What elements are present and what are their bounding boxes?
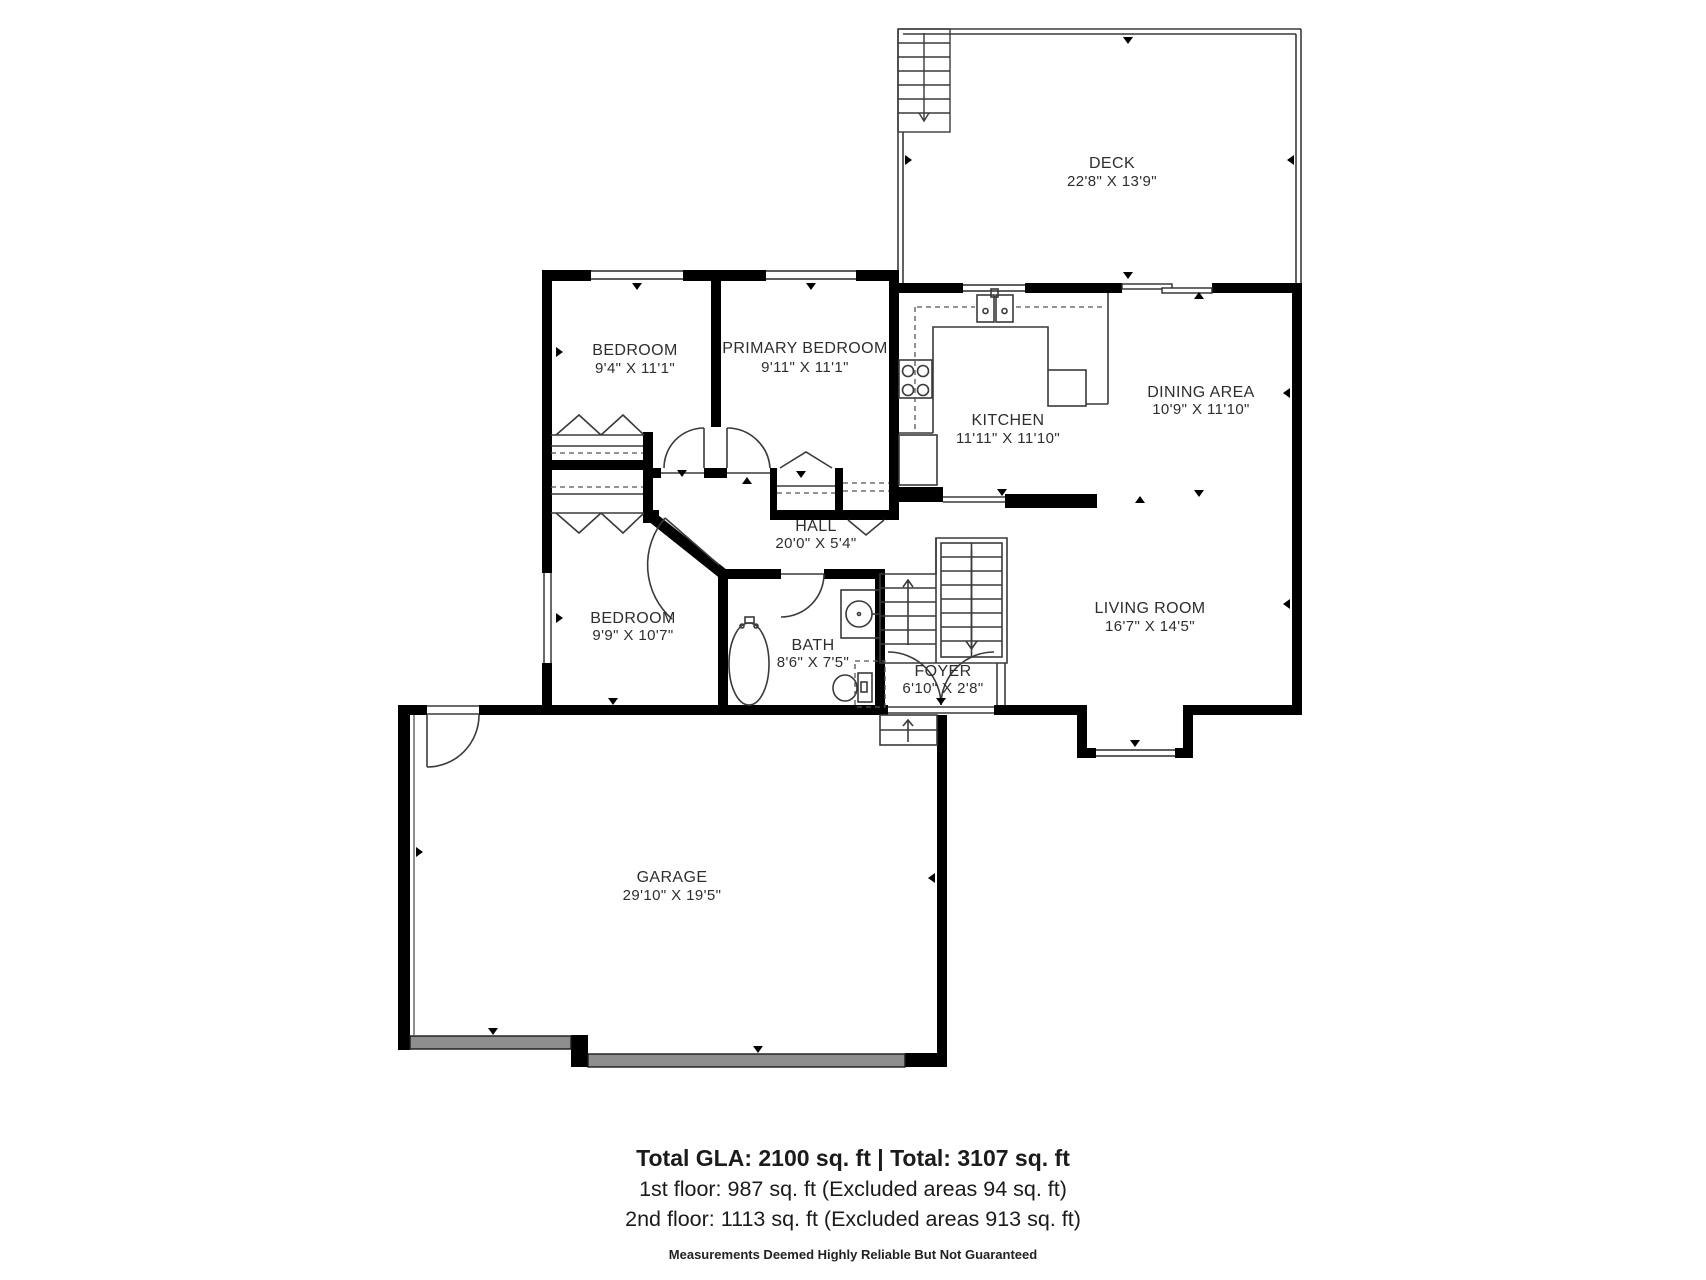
garage-dims: 29'10" X 19'5"	[623, 887, 722, 904]
bath-sink	[841, 590, 880, 638]
second-floor-line: 2nd floor: 1113 sq. ft (Excluded areas 9…	[0, 1204, 1706, 1234]
bedroom1-window	[591, 269, 683, 282]
dining-area-label: DINING AREA	[1147, 384, 1255, 401]
foyer-dims: 6'10" X 2'8"	[902, 680, 983, 697]
bath-door	[781, 574, 824, 617]
bedroom3-window	[540, 573, 554, 663]
hall-label: HALL	[795, 518, 837, 535]
bedroom3-label: BEDROOM	[590, 610, 675, 627]
total-area-line: Total GLA: 2100 sq. ft | Total: 3107 sq.…	[0, 1143, 1706, 1174]
deck-stairs-down-arrow	[919, 33, 929, 121]
bath-label: BATH	[791, 637, 834, 654]
bedroom3-dims: 9'9" X 10'7"	[592, 627, 673, 644]
sliding-door	[1122, 284, 1212, 293]
bay-window	[1096, 747, 1175, 759]
garage-entry-door	[427, 706, 479, 767]
garage-door-right	[588, 1054, 905, 1067]
hall-dims: 20'0" X 5'4"	[775, 535, 856, 552]
deck-label: DECK	[1089, 155, 1135, 172]
deck-stairs	[898, 29, 950, 132]
garage-label: GARAGE	[637, 869, 708, 886]
living-room-label: LIVING ROOM	[1094, 600, 1205, 617]
bedroom1-label: BEDROOM	[592, 342, 677, 359]
first-floor-line: 1st floor: 987 sq. ft (Excluded areas 94…	[0, 1174, 1706, 1204]
bedroom1-dims: 9'4" X 11'1"	[595, 360, 675, 377]
garage-doors	[410, 1036, 905, 1067]
primary-bedroom-dims: 9'11" X 11'1"	[761, 359, 849, 376]
foyer-label: FOYER	[914, 663, 971, 680]
kitchen-dims: 11'11" X 11'10"	[956, 430, 1060, 447]
kitchen-window	[963, 282, 1025, 294]
angled-wall	[648, 514, 722, 573]
primary-window	[766, 269, 856, 282]
stairs-up-arrow	[903, 580, 913, 645]
bathtub	[729, 617, 769, 705]
floorplan-svg: DECK 22'8" X 13'9" BEDROOM 9'4" X 11'1" …	[0, 0, 1706, 1280]
disclaimer: Measurements Deemed Highly Reliable But …	[0, 1247, 1706, 1262]
stairwell	[880, 538, 1007, 663]
living-room-dims: 16'7" X 14'5"	[1105, 618, 1195, 635]
primary-door	[727, 428, 770, 473]
footer-summary: Total GLA: 2100 sq. ft | Total: 3107 sq.…	[0, 1143, 1706, 1262]
dining-area-dims: 10'9" X 11'10"	[1152, 401, 1250, 418]
primary-bedroom-label: PRIMARY BEDROOM	[722, 340, 887, 357]
toilet	[833, 673, 872, 702]
garage-door-left	[410, 1036, 571, 1049]
bath-dims: 8'6" X 7'5"	[777, 654, 850, 671]
entry-stoop	[880, 715, 937, 745]
bedroom1-door	[661, 428, 704, 473]
kitchen-label: KITCHEN	[971, 412, 1044, 429]
deck-dims: 22'8" X 13'9"	[1067, 173, 1157, 190]
